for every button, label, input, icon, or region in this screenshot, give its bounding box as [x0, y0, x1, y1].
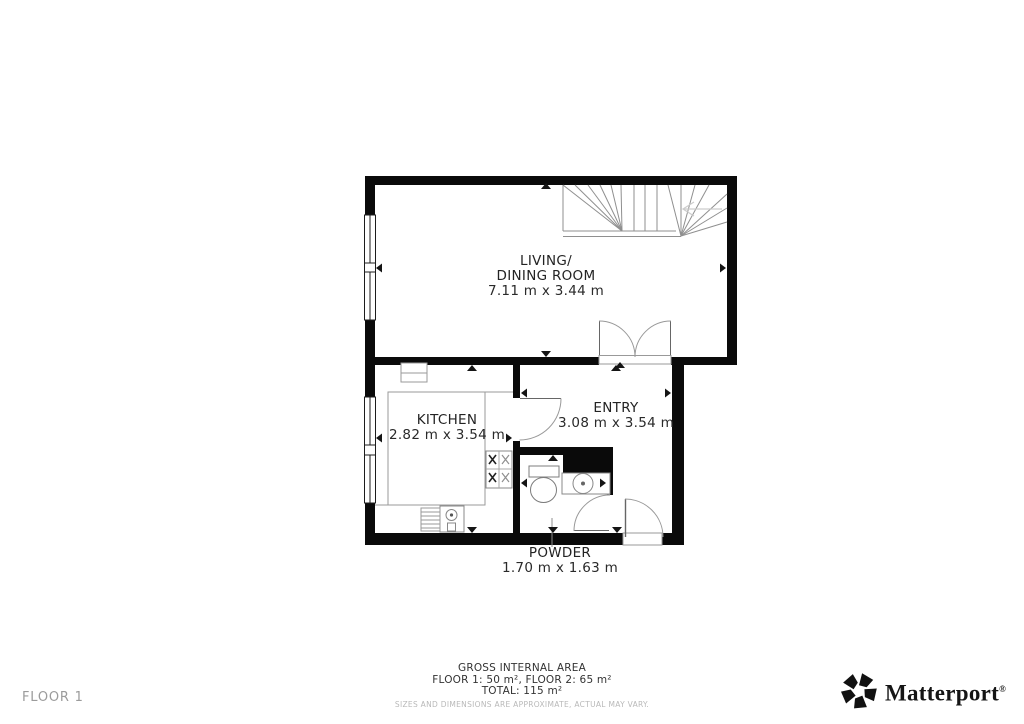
room-dimensions: 1.70 m x 1.63 m — [475, 561, 645, 576]
door-arc — [599, 321, 671, 357]
kitchen-sink-icon — [440, 506, 464, 532]
wall-powder-top — [513, 447, 613, 455]
stove-icon — [486, 451, 512, 488]
room-label-living: LIVING/ DINING ROOM 7.11 m x 3.44 m — [456, 254, 636, 299]
door-arc — [574, 495, 610, 531]
wall-bottom — [365, 533, 623, 545]
fridge-icon — [401, 363, 427, 382]
room-label-entry: ENTRY 3.08 m x 3.54 m — [536, 401, 696, 431]
footer-title: GROSS INTERNAL AREA — [320, 663, 724, 675]
footer-total-area: TOTAL: 115 m² — [320, 686, 724, 698]
room-name: LIVING/ — [456, 254, 636, 269]
wall-living-bottom — [365, 357, 599, 365]
wall-kitchen-entry — [513, 365, 520, 398]
wall-bottom — [662, 533, 684, 545]
powder-door — [574, 495, 610, 531]
double-door — [599, 321, 671, 364]
room-name: POWDER — [475, 546, 645, 561]
gross-area-block: GROSS INTERNAL AREA FLOOR 1: 50 m², FLOO… — [320, 663, 724, 710]
footer-disclaimer: SIZES AND DIMENSIONS ARE APPROXIMATE, AC… — [320, 700, 724, 710]
wall-right-living — [727, 176, 737, 365]
vanity-backing — [563, 455, 610, 473]
dishwasher-icon — [421, 508, 440, 531]
room-dimensions: 3.08 m x 3.54 m — [536, 416, 696, 431]
wall-powder-left — [513, 455, 520, 533]
brand-wordmark: Matterport — [885, 680, 999, 705]
window-icon — [365, 215, 376, 320]
wall-left — [365, 176, 375, 215]
wall-top — [365, 176, 737, 185]
matterport-logo-icon — [840, 672, 878, 710]
room-name: DINING ROOM — [456, 269, 636, 284]
registered-mark: ® — [999, 684, 1006, 694]
stairs — [563, 185, 727, 237]
matterport-logo: Matterport® — [840, 671, 1006, 711]
room-label-kitchen: KITCHEN 2.82 m x 3.54 m — [367, 413, 527, 443]
floor-label: FLOOR 1 — [22, 690, 84, 705]
toilet-icon — [529, 466, 559, 503]
entry-door — [623, 499, 663, 545]
room-name: KITCHEN — [367, 413, 527, 428]
wall-right-entry — [672, 357, 684, 545]
brand-name: Matterport® — [885, 669, 1006, 714]
floor-plan-drawing — [0, 0, 1024, 724]
room-label-powder: POWDER 1.70 m x 1.63 m — [475, 546, 645, 576]
door-arc — [625, 499, 663, 537]
room-name: ENTRY — [536, 401, 696, 416]
room-dimensions: 7.11 m x 3.44 m — [456, 284, 636, 299]
room-dimensions: 2.82 m x 3.54 m — [367, 428, 527, 443]
floor-plan-page: { "plan": { "rooms": { "living": { "line… — [0, 0, 1024, 724]
